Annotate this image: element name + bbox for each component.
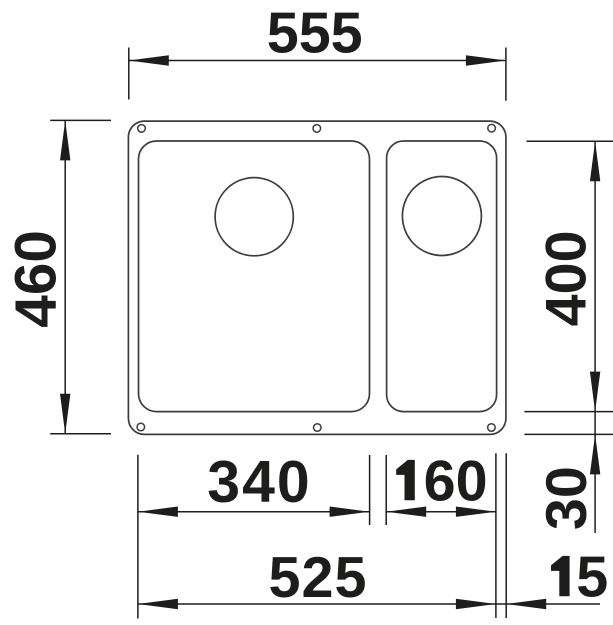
svg-text:460: 460 (4, 230, 69, 328)
svg-text:555: 555 (267, 1, 363, 65)
svg-text:30: 30 (535, 466, 599, 530)
svg-text:60: 60 (424, 450, 488, 514)
svg-text:340: 340 (207, 449, 311, 515)
svg-text:400: 400 (535, 230, 599, 326)
svg-text:5: 5 (576, 546, 608, 610)
svg-text:525: 525 (269, 546, 368, 610)
